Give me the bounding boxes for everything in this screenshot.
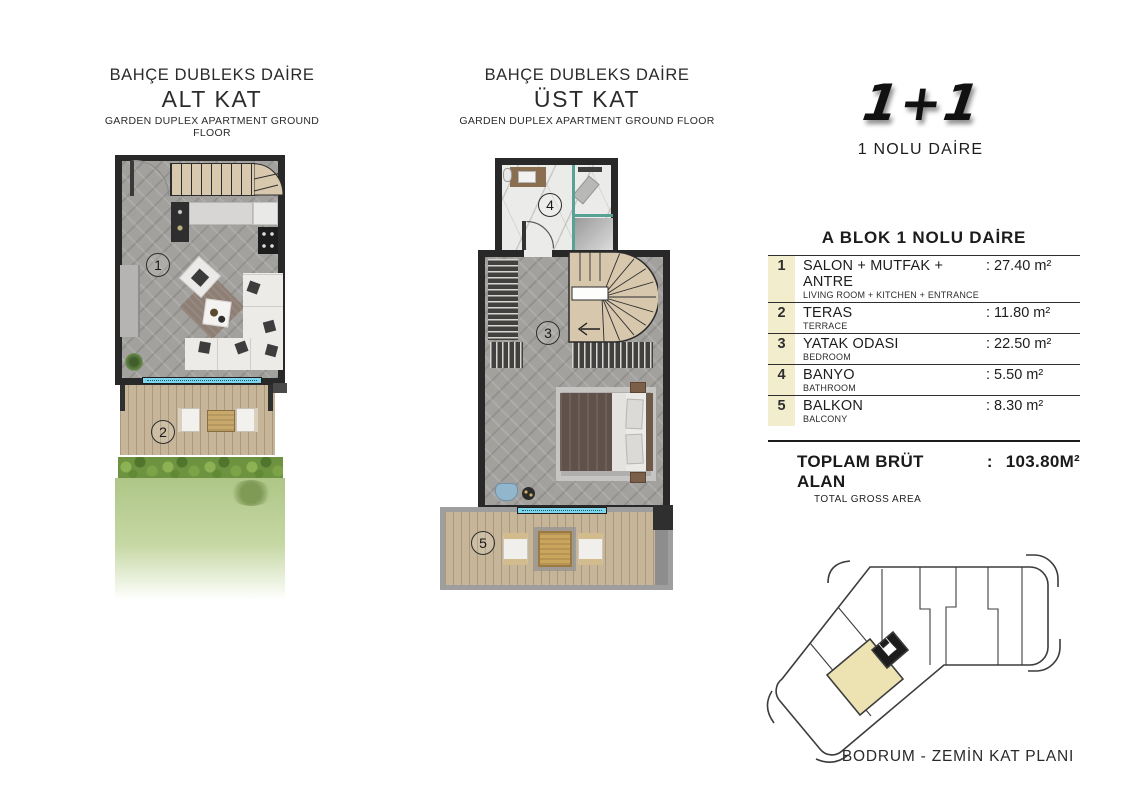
row-name: BANYO BATHROOM xyxy=(795,365,986,395)
shower-floor xyxy=(575,218,613,250)
double-bed xyxy=(560,393,653,471)
lower-plan-title: BAHÇE DUBLEKS DAİRE xyxy=(92,66,332,85)
keyplan-caption: BODRUM - ZEMİN KAT PLANI xyxy=(838,748,1078,766)
garden-grass xyxy=(115,478,285,600)
room-label-bathroom: 4 xyxy=(538,193,562,217)
shower-glass-horizontal xyxy=(572,214,613,217)
lower-plan-subtitle: ALT KAT xyxy=(92,86,332,113)
balcony-frame: 5 xyxy=(440,507,673,590)
accent-chair xyxy=(495,483,518,501)
row-area: : 22.50 m² xyxy=(986,334,1080,364)
wardrobe-closet-left xyxy=(490,342,523,368)
row-number: 2 xyxy=(768,303,795,333)
towel-rail xyxy=(578,167,602,172)
table-row: 3 YATAK ODASI BEDROOM : 22.50 m² xyxy=(768,333,1080,364)
garden-bush xyxy=(230,480,272,506)
upper-plan-subtitle: ÜST KAT xyxy=(452,86,722,113)
wardrobe-left xyxy=(488,259,518,340)
unit-type-logo: 1+1 xyxy=(848,74,996,132)
total-colon: : xyxy=(987,452,993,492)
balcony-table xyxy=(538,531,572,567)
bed-pillow xyxy=(625,399,644,430)
room-label-bedroom: 3 xyxy=(536,321,560,345)
building-key-plan xyxy=(730,545,1120,770)
room-label-living: 1 xyxy=(146,253,170,277)
spiral-staircase xyxy=(568,251,658,343)
room-label-balcony: 5 xyxy=(471,531,495,555)
terrace-glass-door xyxy=(142,377,262,384)
terrace-chair xyxy=(178,408,200,432)
row-number: 1 xyxy=(768,256,795,302)
sofa-pillow xyxy=(198,341,211,354)
row-name: BALKON BALCONY xyxy=(795,396,986,426)
upper-floorplan: 4 3 xyxy=(440,155,675,600)
table-row: 2 TERAS TERRACE : 11.80 m² xyxy=(768,302,1080,333)
room-label-bedroom-number: 3 xyxy=(544,325,552,341)
area-table: A BLOK 1 NOLU DAİRE 1 SALON + MUTFAK + A… xyxy=(768,228,1080,505)
row-name-tr: BANYO xyxy=(803,367,986,383)
coffee-table-tray xyxy=(210,308,219,317)
unit-name: 1 NOLU DAİRE xyxy=(838,141,1003,159)
table-row: 4 BANYO BATHROOM : 5.50 m² xyxy=(768,364,1080,395)
side-stool xyxy=(522,487,535,500)
bathroom-door-arc xyxy=(526,221,554,249)
balcony-glass-door xyxy=(517,507,607,514)
room-label-terrace: 2 xyxy=(151,420,175,444)
staircase xyxy=(170,163,255,196)
shower-glass-vertical xyxy=(572,165,575,250)
wall-extension xyxy=(653,505,673,530)
row-name: TERAS TERRACE xyxy=(795,303,986,333)
terrace-chair xyxy=(236,408,258,432)
upper-plan-header: BAHÇE DUBLEKS DAİRE ÜST KAT GARDEN DUPLE… xyxy=(452,66,722,127)
row-area: : 8.30 m² xyxy=(986,396,1080,426)
total-label: TOPLAM BRÜT ALAN xyxy=(797,452,973,492)
toilet xyxy=(503,168,512,182)
upper-plan-title: BAHÇE DUBLEKS DAİRE xyxy=(452,66,722,85)
row-number: 3 xyxy=(768,334,795,364)
row-name-en: BEDROOM xyxy=(803,352,986,362)
row-name-tr: BALKON xyxy=(803,398,986,414)
bed-sheet xyxy=(612,393,626,471)
nightstand xyxy=(630,382,646,393)
floorplan-sheet: BAHÇE DUBLEKS DAİRE ALT KAT GARDEN DUPLE… xyxy=(0,0,1132,800)
lower-plan-header: BAHÇE DUBLEKS DAİRE ALT KAT GARDEN DUPLE… xyxy=(92,66,332,139)
coffee-table-plate xyxy=(218,315,226,323)
kitchen-island xyxy=(189,202,253,225)
row-name: YATAK ODASI BEDROOM xyxy=(795,334,986,364)
terrace-rail-right xyxy=(268,385,273,411)
kitchen-fridge xyxy=(253,202,278,225)
tv-unit xyxy=(120,265,140,337)
staircase-curve xyxy=(254,163,284,196)
row-name-tr: TERAS xyxy=(803,305,986,321)
upper-plan-subtext: GARDEN DUPLEX APARTMENT GROUND FLOOR xyxy=(452,115,722,127)
row-name-en: BATHROOM xyxy=(803,383,986,393)
balcony-chair xyxy=(578,533,603,565)
row-name-tr: SALON + MUTFAK + ANTRE xyxy=(803,258,986,290)
row-name-en: LIVING ROOM + KITCHEN + ENTRANCE xyxy=(803,290,986,300)
room-label-balcony-number: 5 xyxy=(479,535,487,551)
area-table-title: A BLOK 1 NOLU DAİRE xyxy=(768,228,1080,248)
row-area: : 11.80 m² xyxy=(986,303,1080,333)
balcony-chair xyxy=(503,533,528,565)
row-name-en: TERRACE xyxy=(803,321,986,331)
room-label-living-number: 1 xyxy=(154,257,162,273)
room-label-bathroom-number: 4 xyxy=(546,197,554,213)
wardrobe-closet-right xyxy=(572,342,653,368)
table-row: 1 SALON + MUTFAK + ANTRE LIVING ROOM + K… xyxy=(768,255,1080,302)
bathroom-door-opening xyxy=(524,250,552,257)
bathroom-sink xyxy=(518,171,536,183)
kitchen-counter xyxy=(171,202,189,242)
entry-door-arc xyxy=(133,160,170,197)
garden-hedge xyxy=(118,457,283,478)
terrace-corner-wall xyxy=(273,383,287,393)
row-area: : 5.50 m² xyxy=(986,365,1080,395)
coffee-table xyxy=(202,298,231,327)
bed-pillow xyxy=(625,434,644,465)
total-sublabel: TOTAL GROSS AREA xyxy=(768,494,1080,505)
room-label-terrace-number: 2 xyxy=(159,424,167,440)
armchair-pillow xyxy=(191,269,209,287)
lower-plan-subtext: GARDEN DUPLEX APARTMENT GROUND FLOOR xyxy=(92,115,332,139)
indoor-plant xyxy=(125,353,143,371)
kitchen-cooktop xyxy=(258,227,278,254)
total-divider xyxy=(768,440,1080,442)
bed-headboard xyxy=(646,393,653,471)
row-name: SALON + MUTFAK + ANTRE LIVING ROOM + KIT… xyxy=(795,256,986,302)
row-name-en: BALCONY xyxy=(803,414,986,424)
terrace-rail-left xyxy=(120,385,125,411)
total-row: TOPLAM BRÜT ALAN : 103.80M² xyxy=(768,452,1080,492)
lower-floorplan: 1 2 xyxy=(115,155,285,600)
bed-blanket xyxy=(560,393,612,471)
row-number: 5 xyxy=(768,396,795,426)
nightstand xyxy=(630,472,646,483)
total-value: 103.80M² xyxy=(1006,452,1080,492)
row-name-tr: YATAK ODASI xyxy=(803,336,986,352)
terrace-table xyxy=(207,410,235,432)
row-number: 4 xyxy=(768,365,795,395)
table-row: 5 BALKON BALCONY : 8.30 m² xyxy=(768,395,1080,426)
row-area: : 27.40 m² xyxy=(986,256,1080,302)
